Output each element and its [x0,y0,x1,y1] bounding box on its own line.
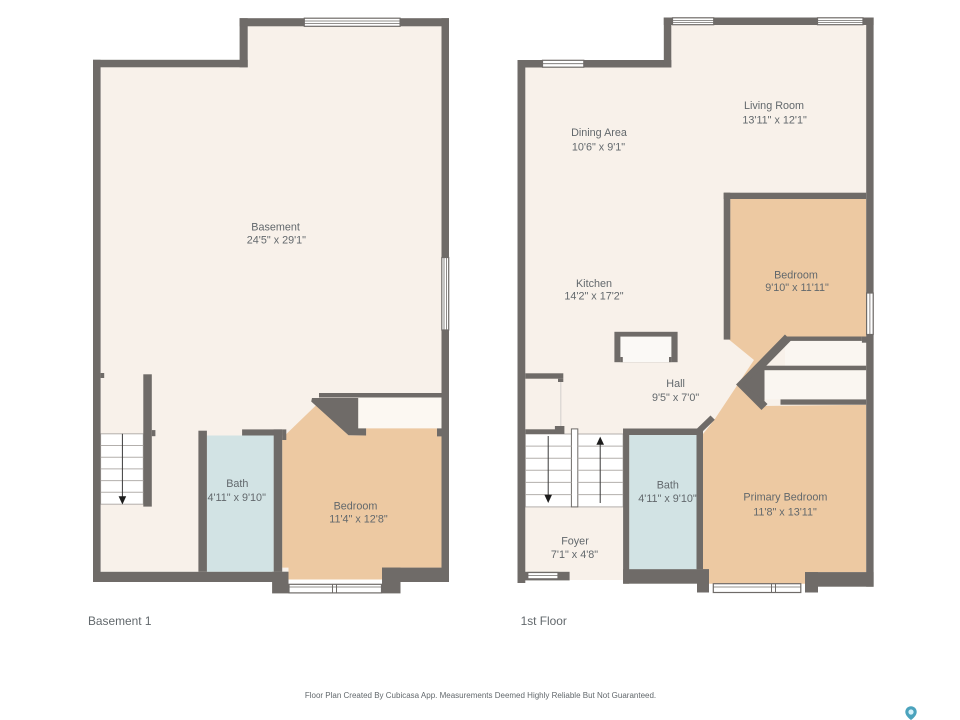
svg-text:Primary Bedroom: Primary Bedroom [743,491,827,503]
svg-text:11'8" x 13'11": 11'8" x 13'11" [753,506,817,518]
svg-text:Bedroom: Bedroom [774,270,818,282]
svg-text:13'11" x 12'1": 13'11" x 12'1" [742,115,807,127]
svg-text:Foyer: Foyer [561,535,589,547]
svg-text:Bedroom: Bedroom [334,500,378,512]
svg-text:Kitchen: Kitchen [576,278,612,290]
svg-text:Bath: Bath [657,479,679,491]
svg-text:4'11" x 9'10": 4'11" x 9'10" [207,492,266,504]
svg-text:14'2" x 17'2": 14'2" x 17'2" [564,291,623,303]
svg-text:24'5" x 29'1": 24'5" x 29'1" [247,235,306,247]
svg-text:Dining Area: Dining Area [571,127,627,139]
svg-text:Floor Plan Created By Cubicasa: Floor Plan Created By Cubicasa App. Meas… [305,691,656,700]
svg-text:10'6" x 9'1": 10'6" x 9'1" [572,142,625,154]
svg-text:Hall: Hall [666,378,685,390]
svg-text:Basement 1: Basement 1 [88,614,152,628]
svg-text:Basement: Basement [251,222,300,234]
svg-text:Bath: Bath [226,478,248,490]
svg-text:9'10" x 11'11": 9'10" x 11'11" [765,282,829,294]
svg-text:11'4" x 12'8": 11'4" x 12'8" [329,514,388,526]
svg-text:4'11" x 9'10": 4'11" x 9'10" [638,493,697,505]
svg-text:9'5" x 7'0": 9'5" x 7'0" [652,392,699,404]
svg-text:1st Floor: 1st Floor [521,614,567,628]
svg-text:7'1" x 4'8": 7'1" x 4'8" [551,549,598,561]
svg-text:Living Room: Living Room [744,100,804,112]
